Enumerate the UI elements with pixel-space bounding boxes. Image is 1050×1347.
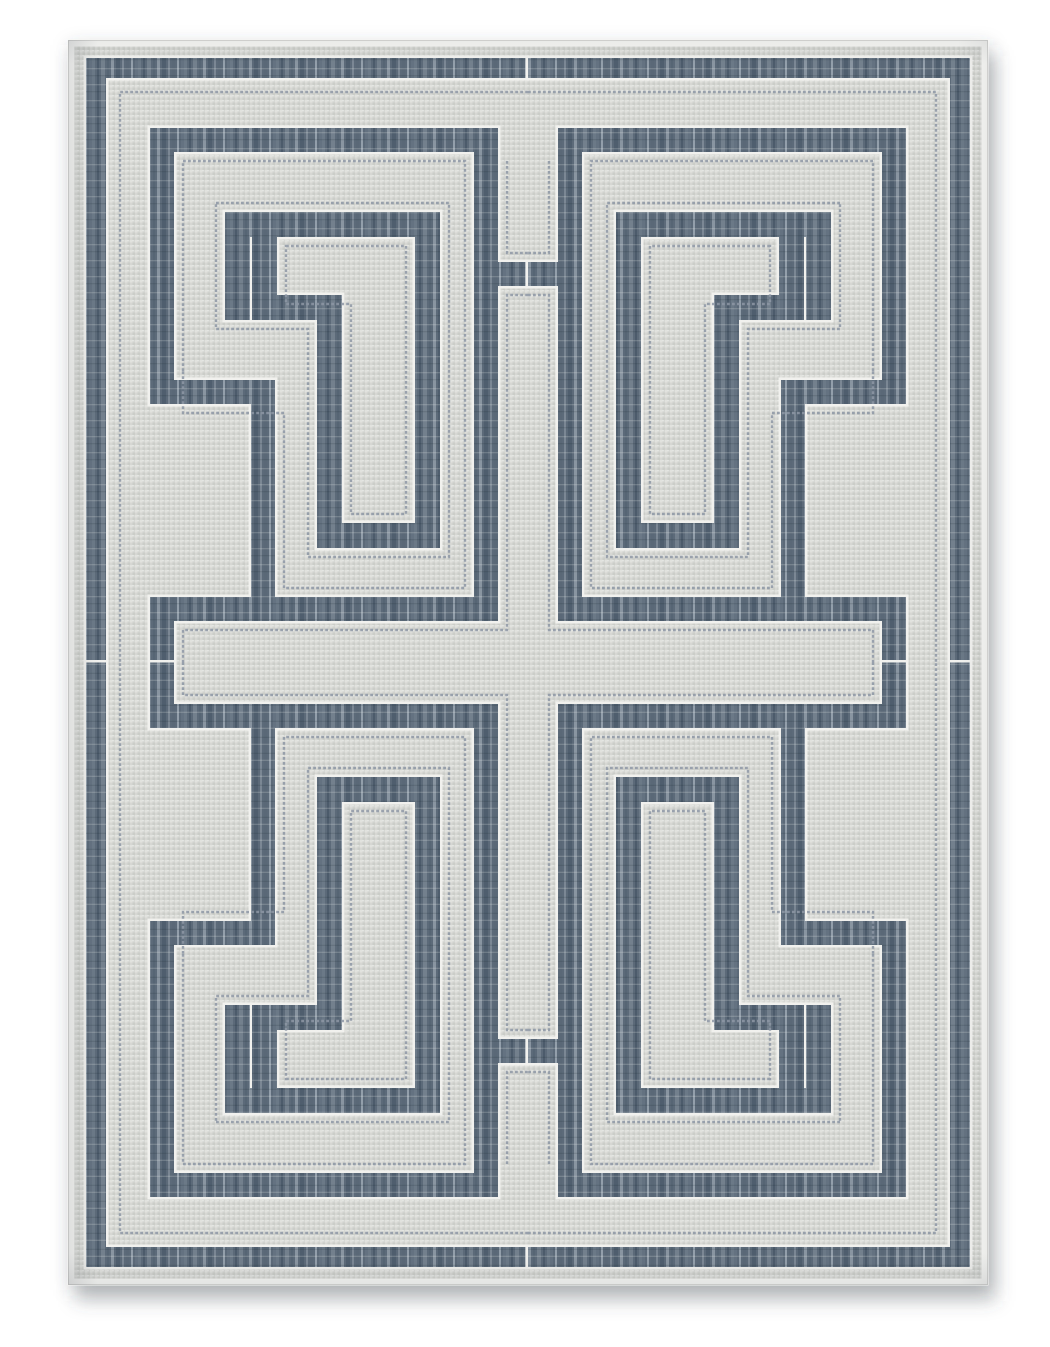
rug: [68, 40, 988, 1285]
left-edge-shade: [68, 40, 98, 1285]
rug-svg: [0, 0, 1050, 1347]
bottom-edge-shade: [68, 1253, 988, 1285]
rug-photo: [0, 0, 1050, 1347]
top-edge-shade: [68, 40, 988, 64]
right-edge-shade: [958, 40, 988, 1285]
